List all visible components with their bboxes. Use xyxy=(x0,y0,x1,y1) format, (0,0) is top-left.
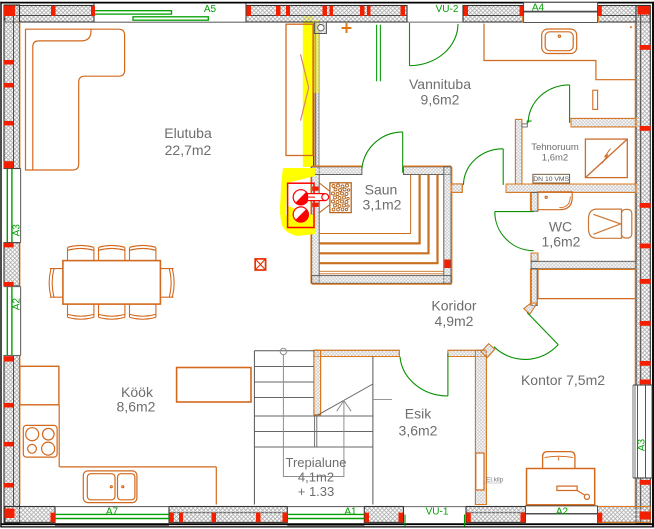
svg-text:Vannituba: Vannituba xyxy=(409,76,471,92)
svg-text:WC: WC xyxy=(549,219,572,235)
svg-text:+ 1.33: + 1.33 xyxy=(298,484,335,499)
svg-text:Esik: Esik xyxy=(405,406,432,422)
svg-text:VU-2: VU-2 xyxy=(436,4,459,15)
svg-text:Tehnoruum: Tehnoruum xyxy=(531,142,579,153)
svg-text:A4: A4 xyxy=(532,3,545,14)
svg-text:4,9m2: 4,9m2 xyxy=(435,313,474,329)
svg-text:Elutuba: Elutuba xyxy=(164,125,212,141)
svg-text:1,6m2: 1,6m2 xyxy=(542,234,581,250)
svg-text:3,1m2: 3,1m2 xyxy=(363,197,402,213)
svg-text:VU-1: VU-1 xyxy=(426,507,449,518)
svg-text:Kontor 7,5m2: Kontor 7,5m2 xyxy=(521,372,605,388)
svg-text:A3: A3 xyxy=(11,224,22,237)
svg-text:3,6m2: 3,6m2 xyxy=(399,423,438,439)
svg-text:9,6m2: 9,6m2 xyxy=(421,92,460,108)
svg-text:8,6m2: 8,6m2 xyxy=(117,399,156,415)
svg-text:1,6m2: 1,6m2 xyxy=(542,153,568,164)
svg-text:DN 10 VMS: DN 10 VMS xyxy=(533,176,569,183)
svg-text:4,1m2: 4,1m2 xyxy=(298,470,334,485)
svg-text:Koridor: Koridor xyxy=(431,298,476,314)
svg-text:A5: A5 xyxy=(204,4,217,15)
svg-text:A2: A2 xyxy=(556,507,569,518)
svg-text:El.kilp: El.kilp xyxy=(486,477,504,484)
svg-text:A3: A3 xyxy=(637,438,648,451)
svg-text:Saun: Saun xyxy=(365,182,398,198)
svg-text:Trepialune: Trepialune xyxy=(286,455,347,470)
svg-text:A7: A7 xyxy=(106,507,119,518)
svg-text:22,7m2: 22,7m2 xyxy=(165,142,212,158)
svg-text:A1: A1 xyxy=(344,507,357,518)
svg-text:A2: A2 xyxy=(12,297,23,310)
